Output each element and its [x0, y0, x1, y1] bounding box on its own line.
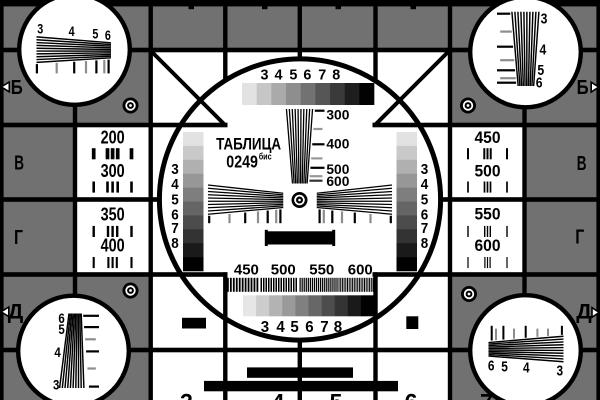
svg-text:7: 7: [320, 319, 329, 336]
svg-text:Б: Б: [11, 77, 23, 99]
svg-text:7: 7: [421, 221, 429, 237]
svg-text:7: 7: [318, 66, 326, 83]
svg-text:6: 6: [305, 319, 314, 336]
svg-text:4: 4: [272, 390, 286, 400]
svg-text:5: 5: [330, 390, 343, 400]
svg-text:350: 350: [101, 205, 125, 225]
svg-text:3: 3: [171, 162, 179, 178]
svg-text:3: 3: [557, 364, 564, 380]
svg-text:0249: 0249: [226, 152, 258, 172]
svg-text:3: 3: [180, 390, 193, 400]
svg-text:300: 300: [101, 161, 125, 181]
svg-text:В: В: [577, 153, 587, 175]
svg-text:5: 5: [58, 321, 65, 337]
svg-text:6: 6: [105, 28, 111, 43]
svg-text:6: 6: [303, 66, 311, 83]
svg-text:4: 4: [171, 177, 179, 193]
svg-text:8: 8: [332, 66, 340, 83]
svg-text:7: 7: [171, 221, 179, 237]
svg-text:4: 4: [276, 319, 285, 336]
svg-text:200: 200: [101, 128, 125, 148]
svg-text:550: 550: [309, 262, 334, 278]
svg-text:3: 3: [261, 319, 270, 336]
svg-text:6: 6: [536, 75, 543, 91]
svg-text:Д: Д: [576, 300, 592, 324]
svg-text:5: 5: [171, 192, 179, 208]
svg-text:В: В: [14, 153, 24, 175]
svg-text:Б: Б: [577, 77, 589, 99]
svg-text:500: 500: [271, 262, 296, 278]
svg-text:450: 450: [475, 129, 501, 147]
svg-text:6: 6: [488, 358, 495, 374]
svg-text:4: 4: [275, 66, 284, 83]
svg-text:550: 550: [475, 206, 501, 224]
svg-text:3: 3: [261, 66, 269, 83]
svg-text:бис: бис: [259, 152, 272, 162]
svg-text:4: 4: [523, 360, 530, 376]
svg-text:400: 400: [101, 235, 125, 255]
svg-text:4: 4: [69, 24, 75, 39]
svg-text:8: 8: [171, 236, 179, 252]
svg-text:Г: Г: [14, 227, 23, 249]
svg-text:500: 500: [475, 163, 501, 181]
svg-text:3: 3: [421, 162, 429, 178]
svg-text:5: 5: [290, 319, 299, 336]
svg-text:6: 6: [405, 390, 418, 400]
svg-text:600: 600: [475, 237, 501, 255]
svg-text:8: 8: [421, 236, 429, 252]
svg-text:4: 4: [421, 177, 429, 193]
svg-text:8: 8: [334, 319, 343, 336]
svg-text:4: 4: [540, 43, 547, 59]
svg-text:450: 450: [234, 262, 259, 278]
svg-text:600: 600: [348, 262, 373, 278]
svg-text:7: 7: [480, 390, 493, 400]
svg-text:5: 5: [501, 359, 508, 375]
svg-text:3: 3: [37, 21, 43, 36]
svg-text:5: 5: [289, 66, 298, 83]
svg-text:5: 5: [92, 27, 98, 42]
svg-text:5: 5: [421, 192, 429, 208]
svg-text:300: 300: [326, 106, 349, 122]
svg-text:3: 3: [53, 376, 60, 392]
svg-text:Д: Д: [8, 299, 23, 323]
svg-text:600: 600: [326, 173, 349, 189]
svg-text:400: 400: [326, 136, 349, 152]
svg-text:3: 3: [541, 12, 548, 28]
svg-text:4: 4: [54, 344, 61, 360]
svg-text:Г: Г: [575, 227, 584, 249]
